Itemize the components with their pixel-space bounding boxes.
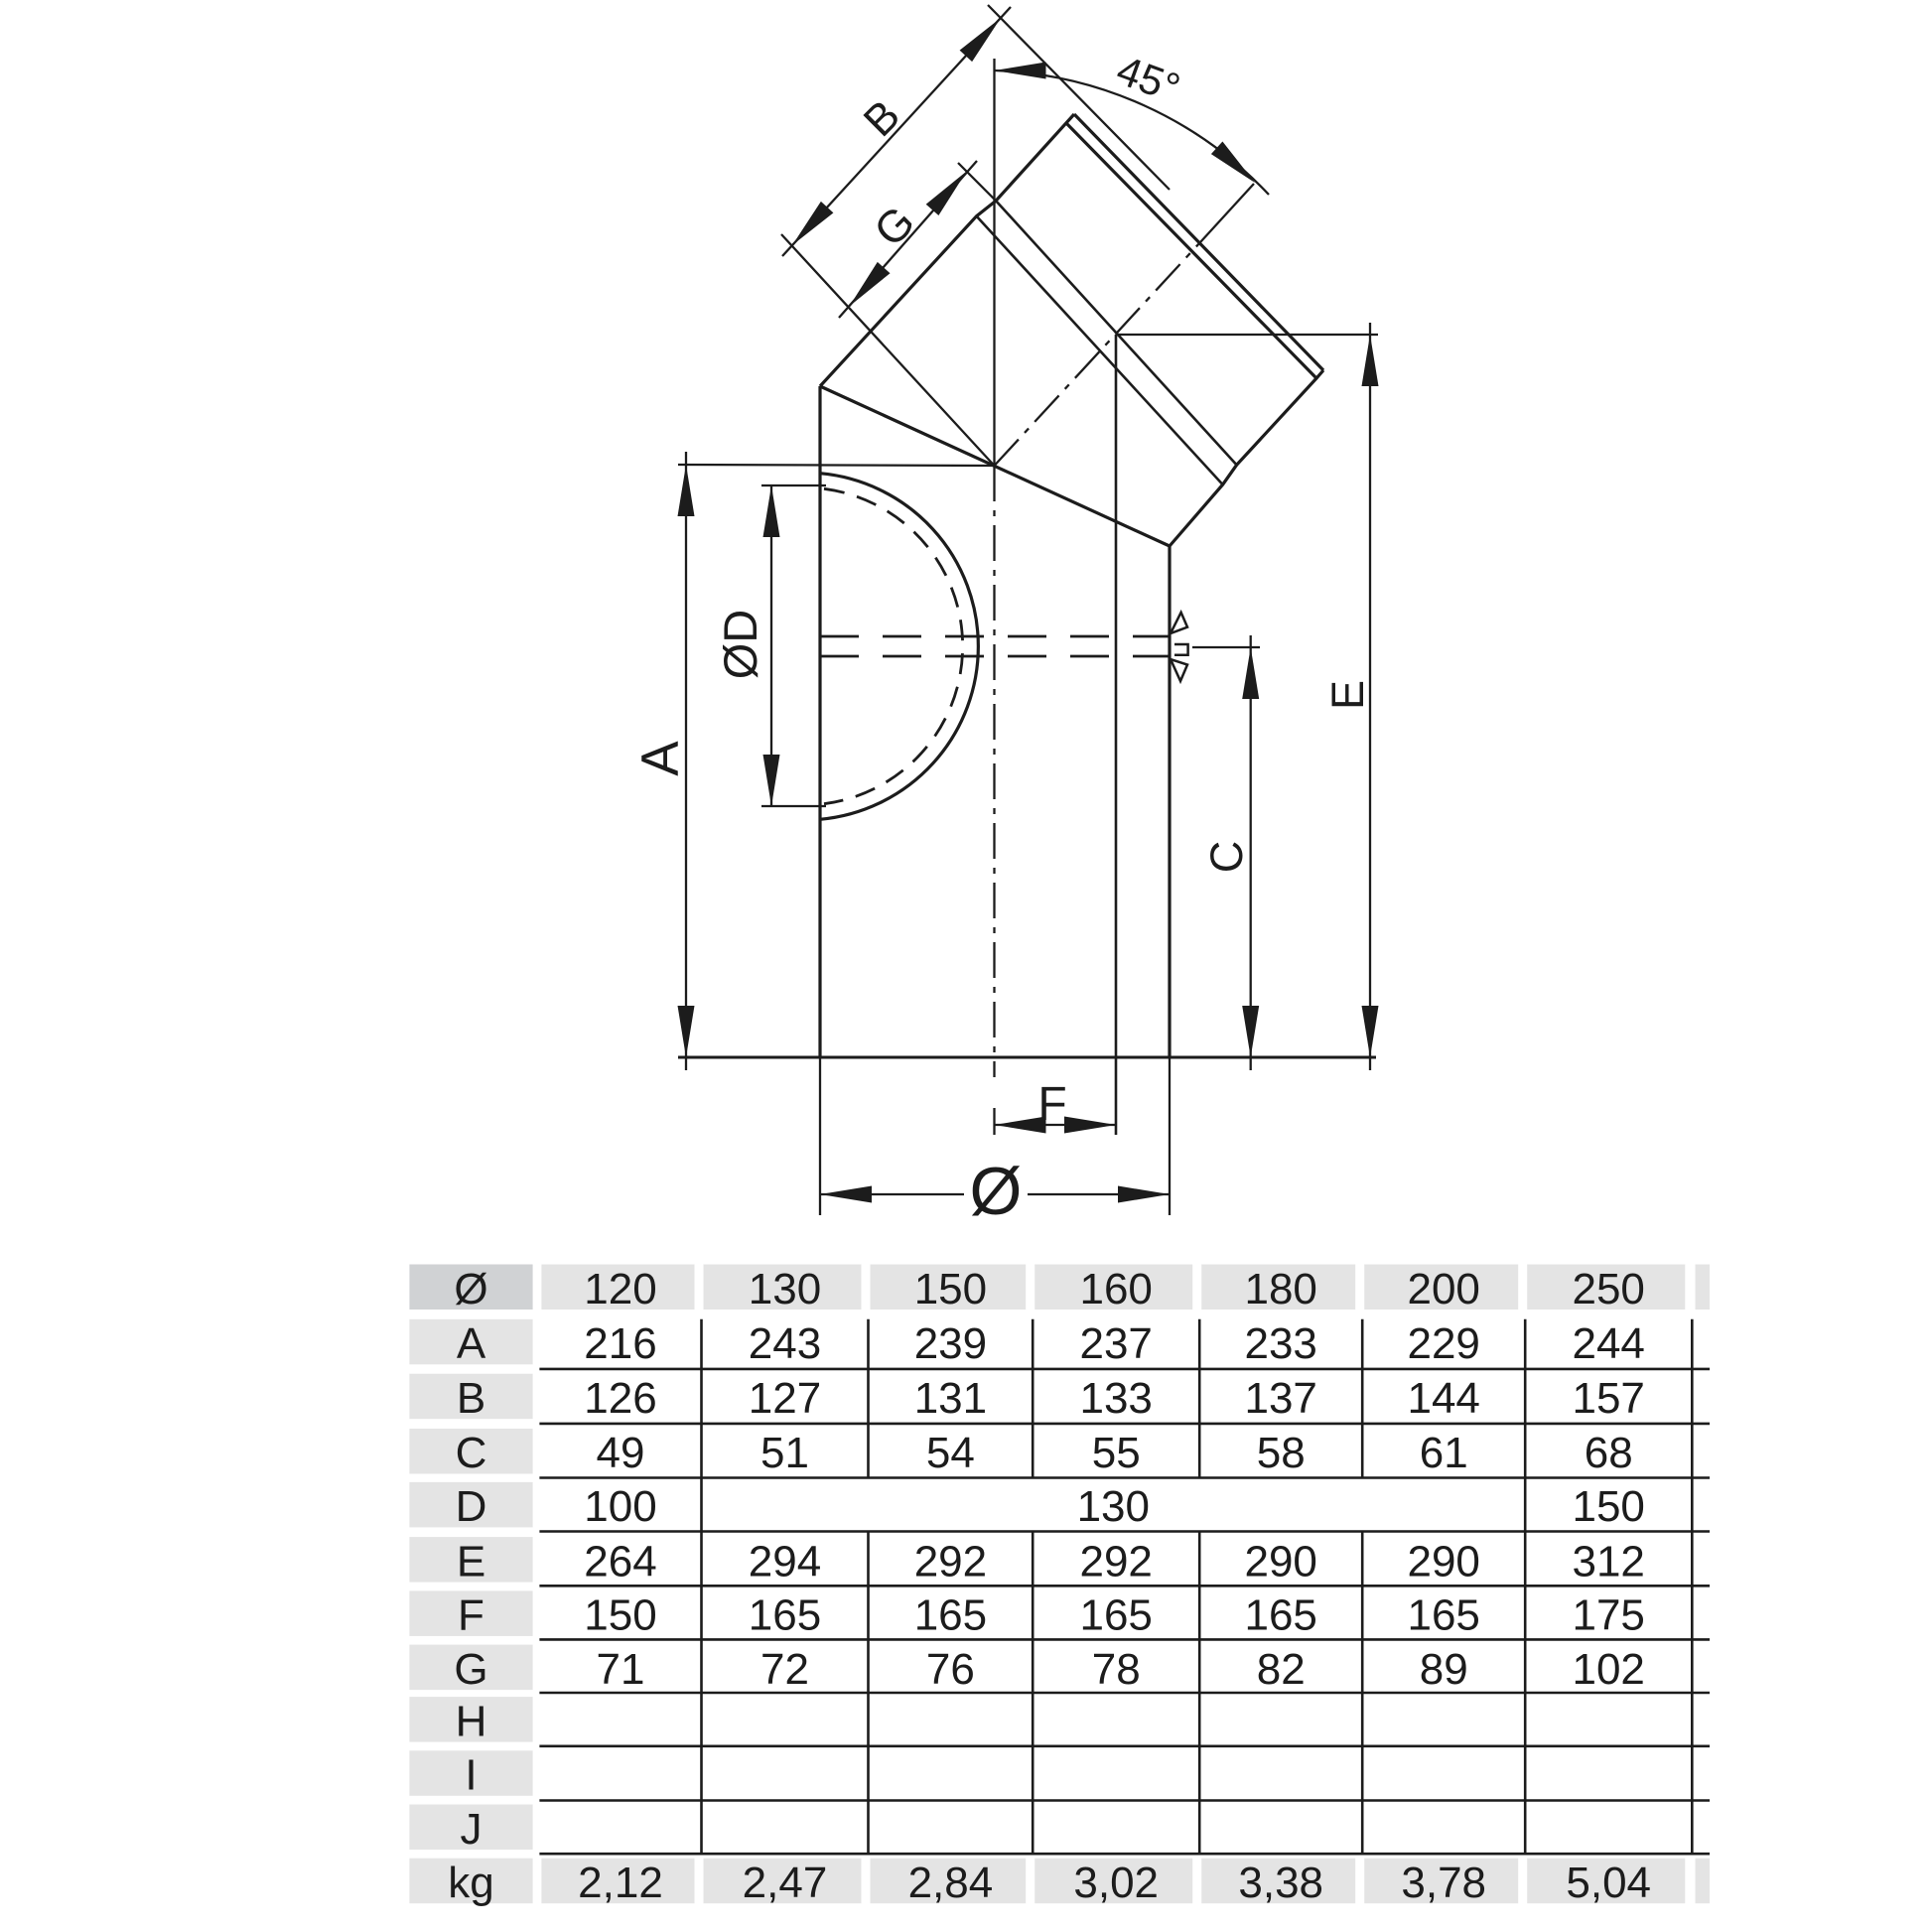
svg-text:175: 175 — [1572, 1591, 1644, 1640]
svg-text:D: D — [456, 1482, 487, 1531]
svg-text:C: C — [456, 1429, 487, 1477]
svg-text:200: 200 — [1407, 1265, 1479, 1313]
svg-text:150: 150 — [584, 1591, 656, 1640]
svg-text:F: F — [1037, 1078, 1066, 1131]
svg-text:165: 165 — [1079, 1591, 1152, 1640]
svg-text:89: 89 — [1420, 1645, 1468, 1694]
svg-text:3,38: 3,38 — [1238, 1859, 1323, 1907]
svg-text:A: A — [631, 741, 690, 776]
svg-text:A: A — [457, 1319, 486, 1368]
svg-text:216: 216 — [584, 1319, 656, 1368]
svg-text:239: 239 — [914, 1319, 987, 1368]
svg-text:290: 290 — [1244, 1537, 1316, 1586]
svg-text:49: 49 — [597, 1429, 645, 1477]
svg-text:54: 54 — [926, 1429, 975, 1477]
svg-text:I: I — [465, 1751, 477, 1800]
svg-text:243: 243 — [749, 1319, 821, 1368]
svg-text:61: 61 — [1420, 1429, 1468, 1477]
svg-text:229: 229 — [1407, 1319, 1479, 1368]
svg-text:68: 68 — [1585, 1429, 1633, 1477]
svg-text:3,78: 3,78 — [1401, 1859, 1486, 1907]
svg-text:292: 292 — [1079, 1537, 1152, 1586]
svg-text:2,47: 2,47 — [743, 1859, 828, 1907]
svg-text:131: 131 — [914, 1374, 987, 1423]
svg-text:233: 233 — [1244, 1319, 1316, 1368]
svg-text:55: 55 — [1092, 1429, 1141, 1477]
svg-text:F: F — [458, 1591, 484, 1640]
svg-text:ØD: ØD — [714, 610, 766, 680]
svg-text:312: 312 — [1572, 1537, 1644, 1586]
svg-text:250: 250 — [1572, 1265, 1644, 1313]
svg-text:2,12: 2,12 — [578, 1859, 663, 1907]
svg-text:51: 51 — [760, 1429, 809, 1477]
svg-text:150: 150 — [914, 1265, 987, 1313]
svg-text:J: J — [461, 1805, 483, 1854]
svg-text:130: 130 — [1077, 1482, 1150, 1531]
svg-text:292: 292 — [914, 1537, 987, 1586]
svg-text:78: 78 — [1092, 1645, 1141, 1694]
svg-text:165: 165 — [1407, 1591, 1479, 1640]
svg-text:165: 165 — [1244, 1591, 1316, 1640]
svg-text:102: 102 — [1572, 1645, 1644, 1694]
svg-text:3,02: 3,02 — [1073, 1859, 1159, 1907]
svg-text:130: 130 — [749, 1265, 821, 1313]
svg-text:58: 58 — [1257, 1429, 1306, 1477]
svg-text:E: E — [1322, 680, 1373, 710]
svg-text:B: B — [457, 1374, 485, 1423]
svg-text:244: 244 — [1572, 1319, 1644, 1368]
svg-text:127: 127 — [749, 1374, 821, 1423]
svg-text:137: 137 — [1244, 1374, 1316, 1423]
svg-text:2,84: 2,84 — [908, 1859, 994, 1907]
svg-text:76: 76 — [926, 1645, 975, 1694]
svg-text:180: 180 — [1244, 1265, 1316, 1313]
svg-text:82: 82 — [1257, 1645, 1306, 1694]
svg-text:H: H — [456, 1697, 487, 1745]
svg-text:150: 150 — [1572, 1482, 1644, 1531]
svg-text:kg: kg — [448, 1859, 493, 1907]
svg-text:Ø: Ø — [970, 1154, 1023, 1229]
svg-text:294: 294 — [749, 1537, 821, 1586]
svg-text:120: 120 — [584, 1265, 656, 1313]
svg-text:G: G — [454, 1645, 487, 1694]
svg-text:160: 160 — [1079, 1265, 1152, 1313]
svg-text:71: 71 — [597, 1645, 645, 1694]
svg-text:157: 157 — [1572, 1374, 1644, 1423]
svg-text:126: 126 — [584, 1374, 656, 1423]
svg-text:165: 165 — [914, 1591, 987, 1640]
svg-text:Ø: Ø — [454, 1265, 487, 1313]
svg-text:100: 100 — [584, 1482, 656, 1531]
svg-text:133: 133 — [1079, 1374, 1152, 1423]
svg-text:264: 264 — [584, 1537, 656, 1586]
svg-text:165: 165 — [749, 1591, 821, 1640]
svg-text:E: E — [457, 1537, 485, 1586]
svg-text:144: 144 — [1407, 1374, 1479, 1423]
svg-text:C: C — [1201, 841, 1252, 874]
svg-text:72: 72 — [760, 1645, 809, 1694]
svg-text:5,04: 5,04 — [1566, 1859, 1651, 1907]
svg-text:290: 290 — [1407, 1537, 1479, 1586]
svg-text:237: 237 — [1079, 1319, 1152, 1368]
